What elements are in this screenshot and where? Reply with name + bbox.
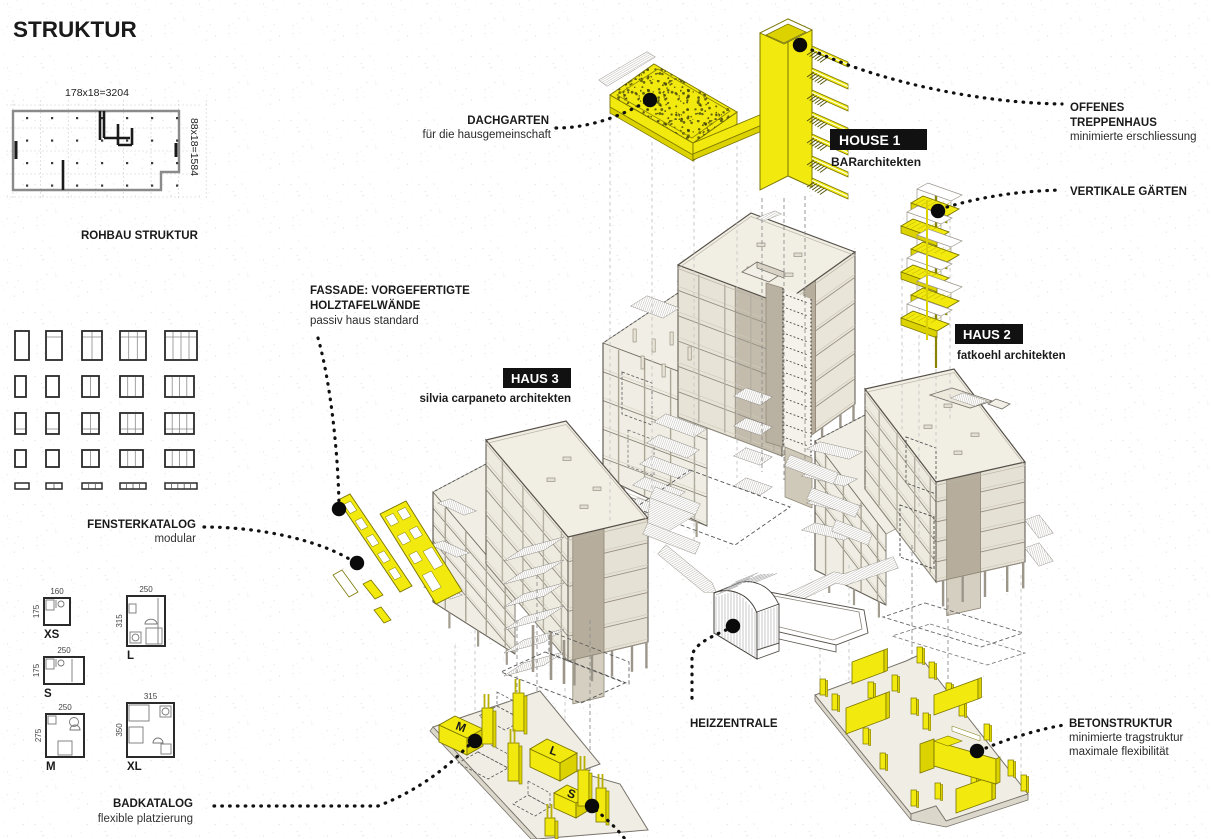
svg-text:160: 160 (50, 587, 64, 596)
svg-text:DACHGARTEN: DACHGARTEN (467, 115, 549, 127)
svg-text:silvia carpaneto architekten: silvia carpaneto architekten (420, 393, 571, 405)
svg-text:175: 175 (32, 604, 41, 618)
svg-text:BETONSTRUKTUR: BETONSTRUKTUR (1069, 718, 1173, 730)
svg-text:350: 350 (115, 723, 124, 737)
svg-text:OFFENES: OFFENES (1070, 102, 1125, 114)
svg-text:S: S (44, 688, 52, 700)
svg-text:FASSADE: VORGEFERTIGTE: FASSADE: VORGEFERTIGTE (310, 285, 470, 297)
svg-text:FENSTERKATALOG: FENSTERKATALOG (87, 519, 196, 531)
svg-text:HOLZTAFELWÄNDE: HOLZTAFELWÄNDE (310, 299, 421, 312)
svg-text:minimierte erschliessung: minimierte erschliessung (1070, 131, 1197, 143)
svg-text:178x18=3204: 178x18=3204 (65, 87, 129, 99)
svg-text:250: 250 (58, 703, 72, 712)
svg-text:fatkoehl architekten: fatkoehl architekten (957, 350, 1066, 362)
svg-text:BARarchitekten: BARarchitekten (831, 155, 921, 169)
svg-text:minimierte tragstruktur: minimierte tragstruktur (1069, 732, 1184, 744)
svg-text:HEIZZENTRALE: HEIZZENTRALE (690, 718, 778, 730)
svg-text:250: 250 (139, 585, 153, 594)
svg-text:für die hausgemeinschaft: für die hausgemeinschaft (423, 129, 552, 141)
svg-text:flexible platzierung: flexible platzierung (98, 813, 193, 825)
svg-text:HOUSE 1: HOUSE 1 (839, 132, 901, 148)
svg-text:passiv haus standard: passiv haus standard (310, 315, 419, 327)
svg-text:XL: XL (127, 761, 142, 773)
svg-text:HAUS 2: HAUS 2 (963, 327, 1011, 342)
svg-text:175: 175 (32, 663, 41, 677)
svg-text:315: 315 (144, 692, 158, 701)
svg-text:HAUS 3: HAUS 3 (511, 371, 559, 386)
svg-text:ROHBAU STRUKTUR: ROHBAU STRUKTUR (81, 230, 199, 242)
svg-text:88x18=1584: 88x18=1584 (188, 118, 200, 176)
svg-text:275: 275 (34, 728, 43, 742)
svg-text:STRUKTUR: STRUKTUR (13, 17, 137, 42)
svg-text:modular: modular (154, 533, 196, 545)
svg-text:BADKATALOG: BADKATALOG (113, 798, 193, 810)
svg-text:M: M (46, 761, 56, 773)
svg-text:250: 250 (57, 646, 71, 655)
svg-text:L: L (127, 650, 134, 662)
svg-text:maximale flexibilität: maximale flexibilität (1069, 746, 1170, 758)
svg-text:VERTIKALE GÄRTEN: VERTIKALE GÄRTEN (1070, 185, 1187, 198)
svg-text:XS: XS (44, 629, 60, 641)
svg-text:TREPPENHAUS: TREPPENHAUS (1070, 117, 1157, 129)
svg-text:315: 315 (115, 614, 124, 628)
